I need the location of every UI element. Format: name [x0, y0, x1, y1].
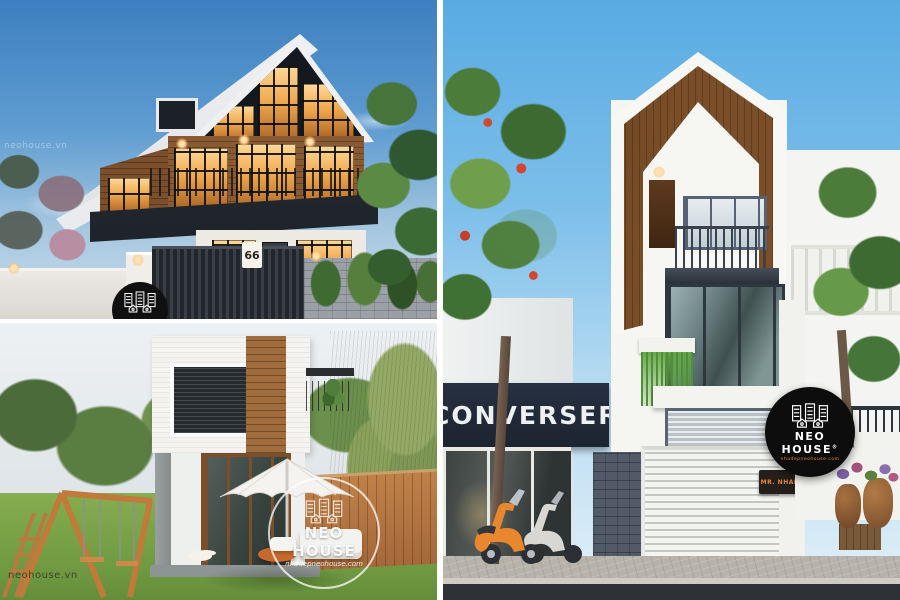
badge-title: NEO HOUSE® — [765, 430, 855, 456]
watermark-ring: NEO HOUSE nhadepneohouse.com — [268, 477, 380, 589]
balcony-plant — [322, 379, 344, 407]
louver-window — [170, 363, 250, 437]
wall-lamp-glow — [176, 138, 188, 150]
fence-lamp-glow — [132, 254, 144, 266]
neohouse-buildings-icon — [304, 498, 344, 524]
road — [443, 584, 900, 600]
flowering-tree-left — [443, 46, 579, 352]
watermark-subtitle: nhadepneohouse.com — [285, 560, 363, 568]
wall-lamp-glow — [653, 166, 665, 178]
badge-title-text: NEO HOUSE — [782, 430, 832, 456]
neohouse-buildings-icon — [123, 290, 157, 314]
roof-window — [156, 98, 198, 132]
slat-gate — [152, 246, 304, 319]
tree-right — [769, 140, 900, 432]
upper-floor-cube — [152, 336, 310, 453]
upper-wood-door — [649, 180, 675, 248]
panel-dusk-villa: neohouse.vn — [0, 0, 437, 319]
corner-site-text: neohouse.vn — [8, 570, 78, 581]
watermark-title: NEO HOUSE — [270, 524, 378, 560]
wood-accent-panel — [246, 336, 286, 453]
balcony-canopy — [306, 368, 354, 376]
scooter-orange-vespa — [475, 489, 541, 564]
panel-townhouse-street: CONVERSER MR. NHAN — [443, 0, 900, 600]
door-sign-text: MR. NHAN — [761, 479, 800, 486]
lit-window — [108, 178, 150, 214]
badge-reg-mark: ® — [832, 444, 839, 450]
wall-lamp-glow — [304, 136, 316, 148]
flower-pot — [835, 484, 861, 528]
house-number: 66 — [244, 249, 259, 262]
dog — [188, 551, 212, 561]
neohouse-badge: NEO HOUSE® nhadepneohouse.com — [765, 387, 855, 477]
parked-scooters — [469, 468, 593, 568]
tree-left-blossom — [0, 128, 104, 274]
house-number-plate: 66 — [242, 242, 262, 268]
neohouse-buildings-icon — [790, 403, 830, 428]
wall-lamp-glow — [238, 134, 250, 146]
tree-right — [318, 58, 437, 313]
floor-slab — [665, 268, 779, 284]
shop-sign-text: CONVERSER — [443, 401, 609, 430]
planter-box — [639, 338, 695, 353]
panel-garden-house: NEO HOUSE nhadepneohouse.com neohouse.vn — [0, 323, 437, 600]
louver-gate — [641, 446, 787, 564]
badge-url: nhadepneohouse.com — [781, 457, 840, 462]
photo-collage: neohouse.vn — [0, 0, 900, 600]
shop-sign: CONVERSER — [443, 383, 609, 447]
